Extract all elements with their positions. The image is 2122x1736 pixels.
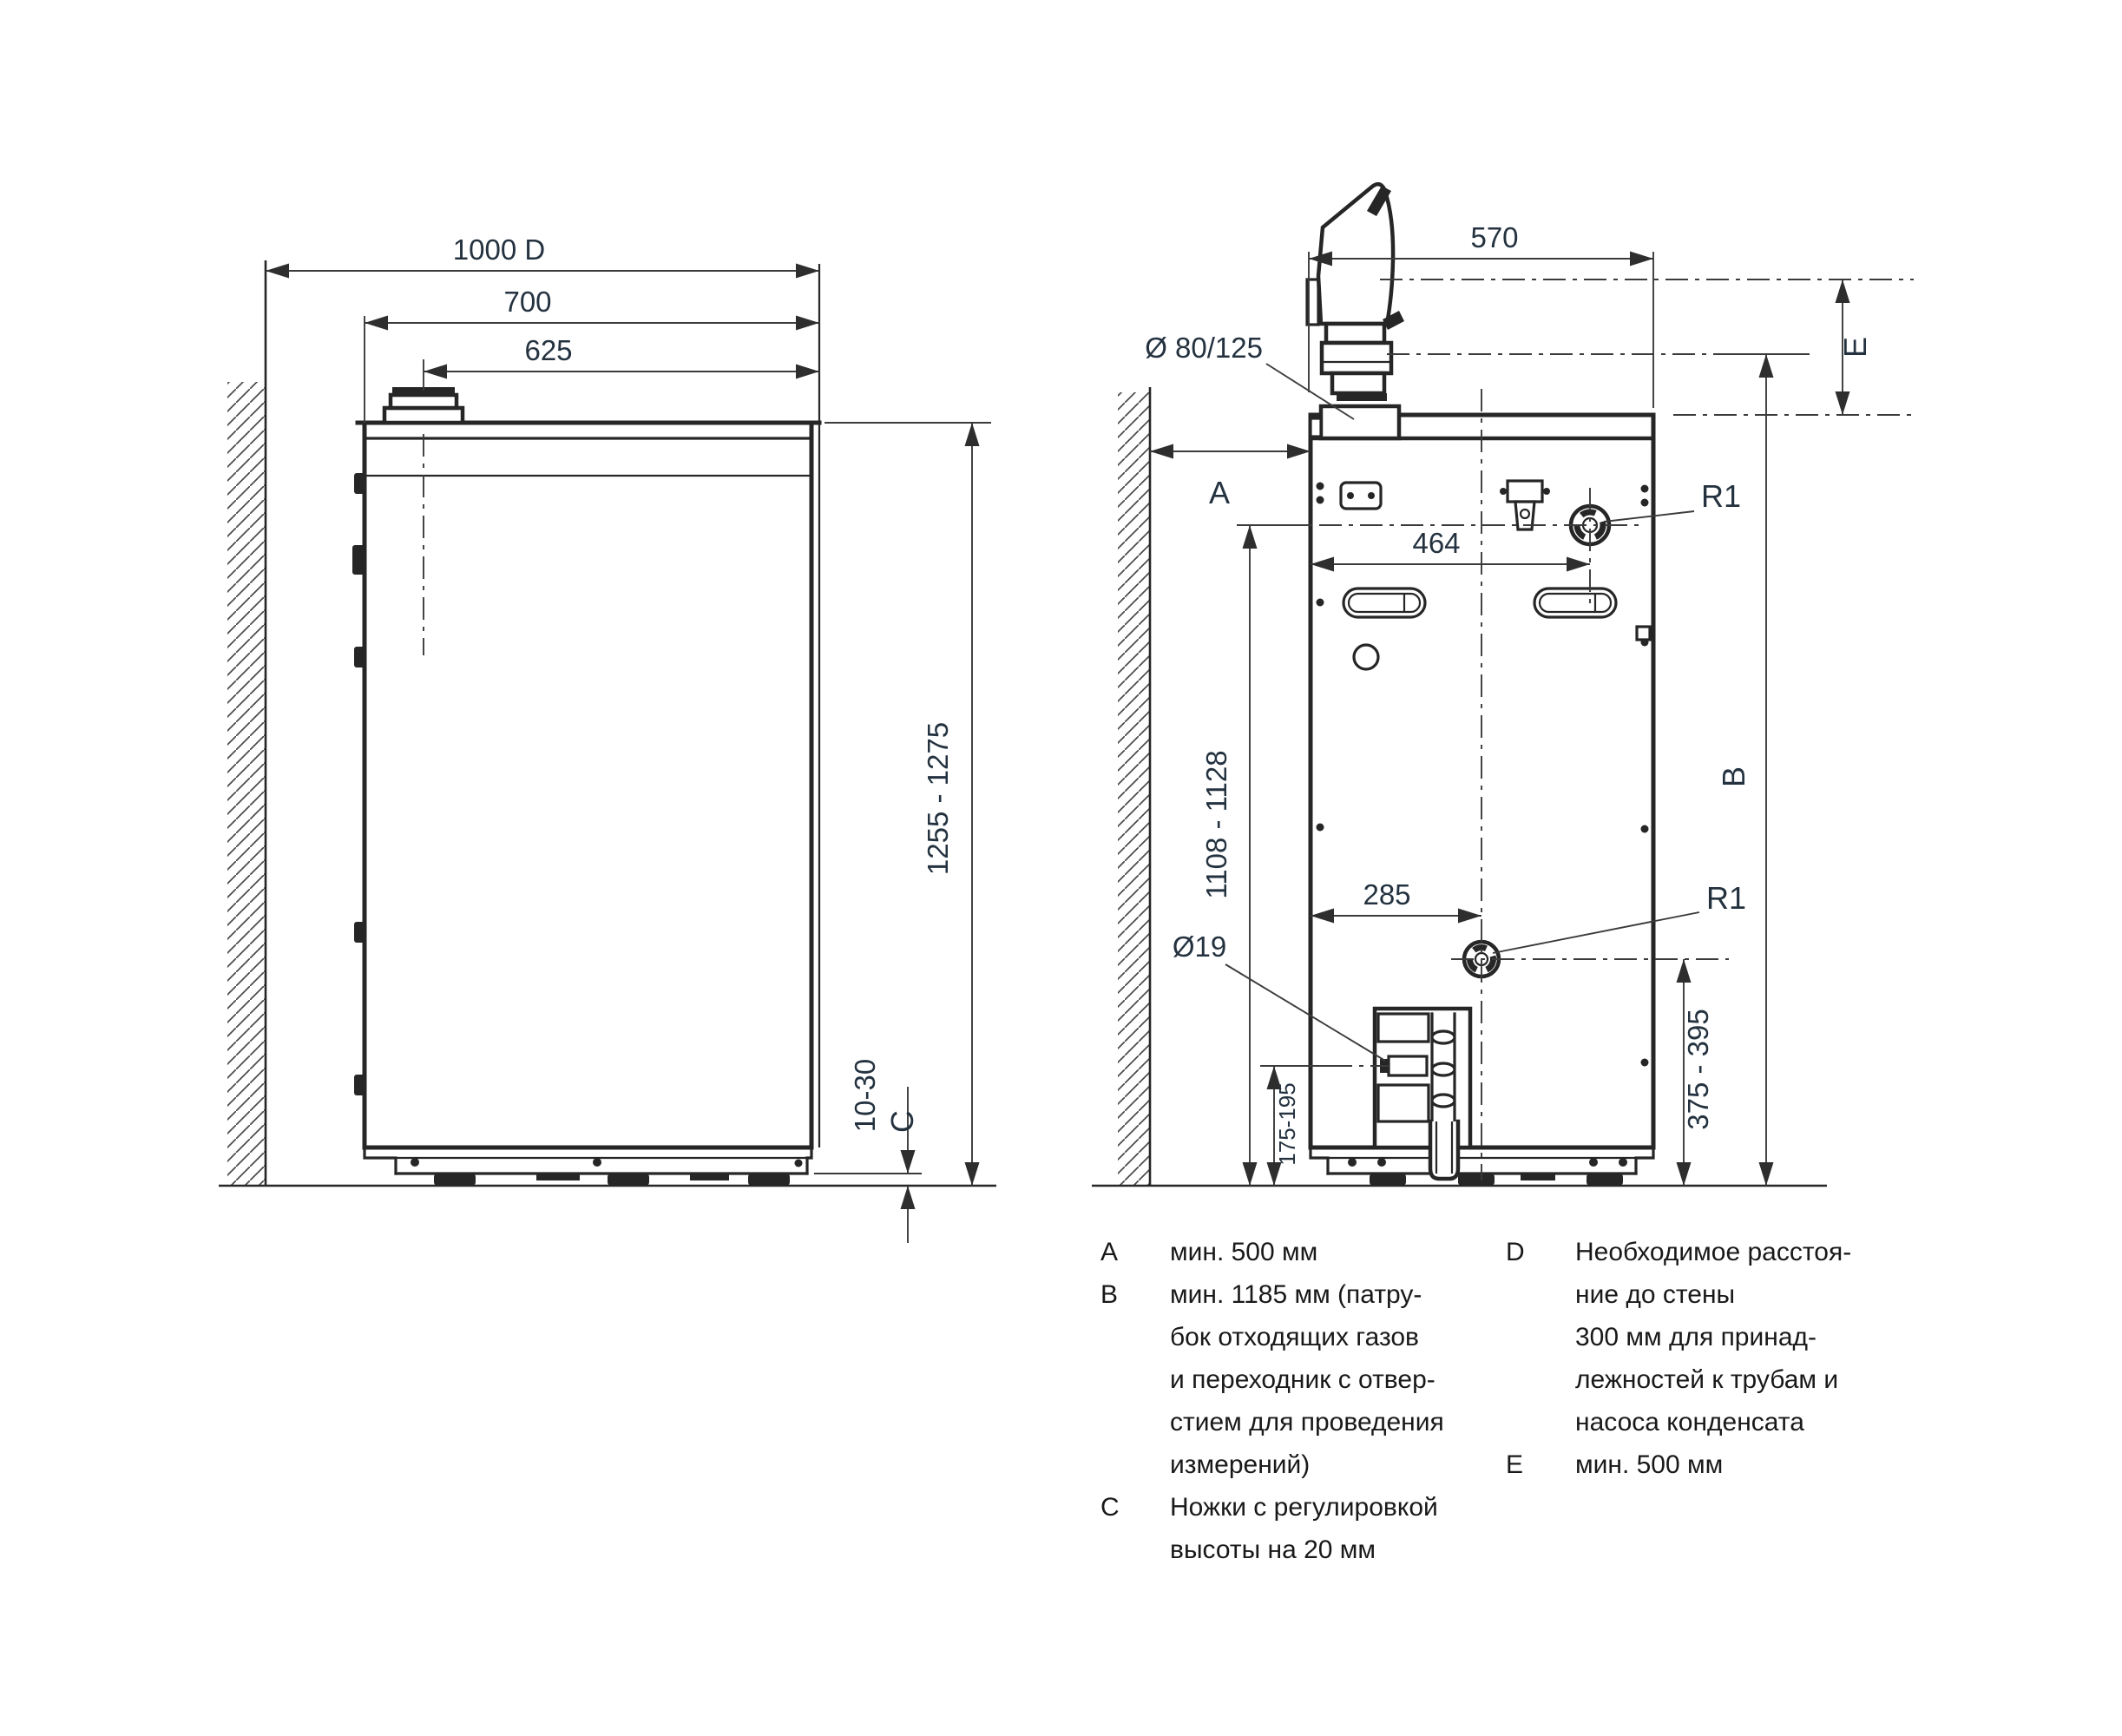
handle-slot-right: [1534, 589, 1616, 617]
condensate-nipple: [1389, 1056, 1427, 1075]
label-condensate-diameter: Ø19: [1173, 930, 1226, 963]
legend-text: мин. 500 мм: [1575, 1450, 1723, 1479]
panel-hole: [1354, 645, 1378, 669]
legend-text: и переходник с отвер-: [1170, 1365, 1435, 1394]
flue-duct-lower: [1332, 373, 1384, 393]
boiler-installation-drawing-page: 1000 D 700 625 1255 - 1275 10-30 C: [0, 0, 2122, 1736]
flue-neck: [1326, 324, 1384, 343]
legend-text: лежностей к трубам и: [1575, 1365, 1838, 1394]
dim-label-285: 285: [1363, 878, 1410, 911]
dim-total-from-wall: 1000 D: [266, 233, 819, 271]
label-r1-top: R1: [1701, 478, 1741, 514]
dim-key-a: A: [1209, 475, 1230, 510]
wall-left: [227, 260, 266, 1186]
junction-box-icon: [1341, 483, 1381, 509]
boiler-side-base: [365, 1147, 811, 1186]
adjustable-feet-side: [434, 1174, 790, 1186]
flue-adapter-tab: [1311, 418, 1321, 437]
dim-flue-to-front: 625: [424, 334, 819, 372]
flue-adapter-base: [1321, 406, 1399, 438]
rear-view: 570 A 464 285 1108 - 1128 175-195 375 - …: [1092, 184, 1914, 1186]
legend-text: бок отходящих газов: [1170, 1323, 1419, 1351]
legend-key-a: A: [1100, 1238, 1118, 1266]
label-r1-bottom: R1: [1706, 880, 1746, 916]
flue-collar-ring: [1337, 393, 1387, 401]
dim-label-375-395: 375 - 395: [1682, 1009, 1714, 1129]
legend-item-e: E мин. 500 мм: [1506, 1450, 1723, 1479]
legend-text: высоты на 20 мм: [1170, 1535, 1376, 1564]
dim-flue-center-height: 1108 - 1128: [1200, 525, 1250, 1186]
dim-key-b: B: [1716, 766, 1751, 787]
condensate-drain-tube: [1430, 1121, 1458, 1179]
flue-terminal-assembly: [1307, 184, 1404, 438]
wall-right: [1118, 387, 1150, 1186]
condensate-assembly: [1375, 1009, 1470, 1179]
dim-label-1000: 1000 D: [453, 233, 545, 266]
handle-slot-left: [1343, 589, 1425, 617]
dim-label-1108-1128: 1108 - 1128: [1200, 750, 1232, 898]
side-view: 1000 D 700 625 1255 - 1275 10-30 C: [219, 233, 996, 1243]
dim-label-464: 464: [1412, 527, 1460, 559]
dim-feet-adjust: 10-30 C: [814, 1059, 922, 1243]
label-flue-diameter: Ø 80/125: [1145, 332, 1263, 364]
legend: A мин. 500 мм B мин. 1185 мм (патру- бок…: [1100, 1238, 1851, 1564]
legend-key-b: B: [1100, 1280, 1118, 1309]
dim-label-height: 1255 - 1275: [922, 722, 954, 875]
legend-key-e: E: [1506, 1450, 1523, 1479]
dim-label-570: 570: [1470, 221, 1518, 253]
adjustable-feet-rear: [1370, 1174, 1623, 1186]
legend-text: измерений): [1170, 1450, 1310, 1479]
dim-top-clearance-e: E: [1837, 279, 1873, 415]
dim-wall-clearance-a: A: [1150, 451, 1311, 510]
dim-label-625: 625: [524, 334, 572, 366]
legend-item-a: A мин. 500 мм: [1100, 1238, 1317, 1266]
legend-text: мин. 500 мм: [1170, 1238, 1317, 1266]
flue-duct-upper: [1322, 343, 1391, 373]
legend-item-b: B мин. 1185 мм (патру- бок отходящих газ…: [1100, 1280, 1444, 1479]
dim-key-e: E: [1837, 337, 1873, 358]
legend-text: ние до стены: [1575, 1280, 1735, 1309]
legend-text: мин. 1185 мм (патру-: [1170, 1280, 1422, 1309]
dim-return-height: 375 - 395: [1682, 959, 1714, 1186]
legend-item-c: C Ножки с регулировкой высоты на 20 мм: [1100, 1493, 1438, 1564]
legend-key-c: C: [1100, 1493, 1120, 1522]
dim-label-175-195: 175-195: [1274, 1082, 1300, 1165]
installation-drawing: 1000 D 700 625 1255 - 1275 10-30 C: [0, 0, 2122, 1736]
dim-label-10-30: 10-30: [849, 1059, 881, 1132]
legend-text: Необходимое расстоя-: [1575, 1238, 1851, 1266]
legend-text: 300 мм для принад-: [1575, 1323, 1817, 1351]
legend-text: насоса конденсата: [1575, 1408, 1804, 1437]
dim-label-700: 700: [503, 286, 551, 318]
legend-key-d: D: [1506, 1238, 1525, 1266]
legend-text: Ножки с регулировкой: [1170, 1493, 1438, 1522]
dim-key-c: C: [884, 1110, 920, 1133]
dim-condensate-height: 175-195: [1274, 1066, 1300, 1186]
legend-text: стием для проведения: [1170, 1408, 1444, 1437]
legend-item-d: D Необходимое расстоя- ние до стены 300 …: [1506, 1238, 1851, 1437]
